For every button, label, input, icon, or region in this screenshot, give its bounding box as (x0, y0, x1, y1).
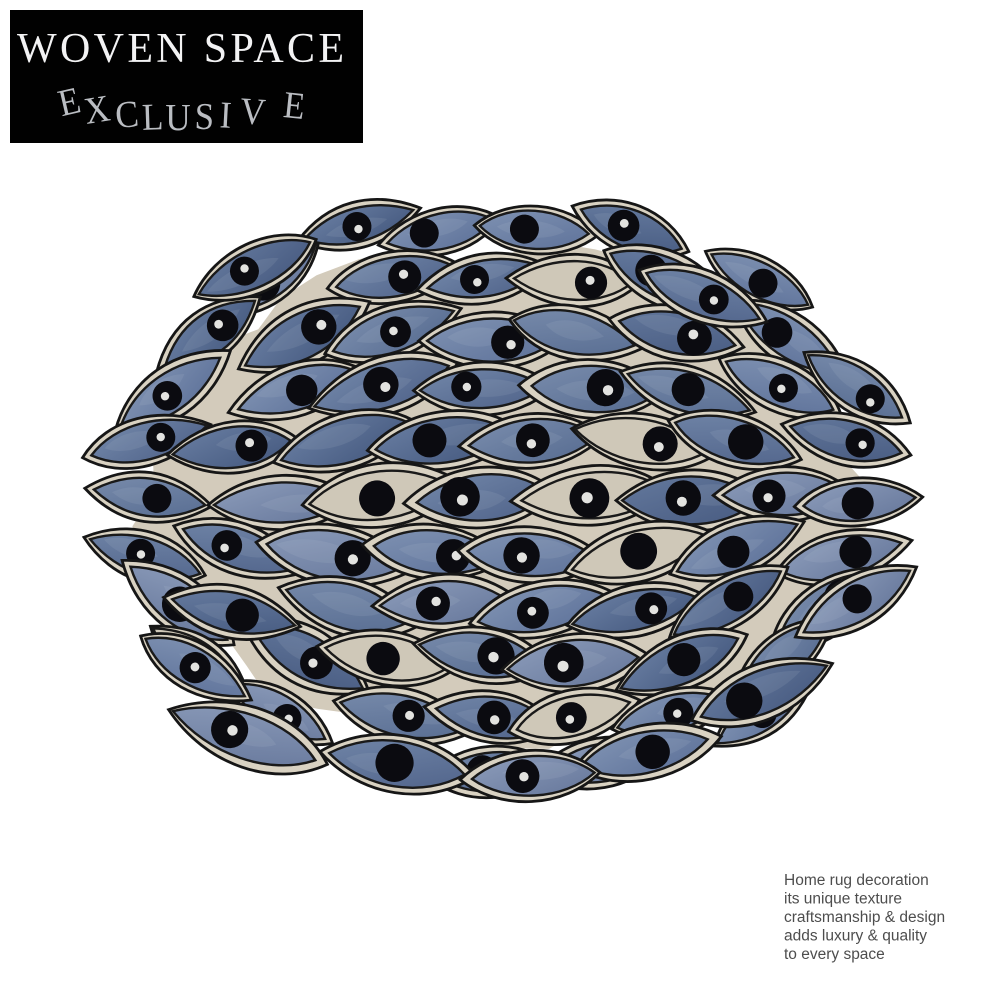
svg-text:Home rug decoration: Home rug decoration (784, 872, 929, 889)
svg-text:S: S (194, 94, 215, 137)
svg-text:L: L (141, 95, 164, 138)
svg-text:U: U (165, 96, 190, 139)
svg-text:C: C (113, 92, 140, 137)
svg-text:I: I (219, 93, 233, 136)
svg-text:E: E (282, 83, 308, 128)
svg-text:to every space: to every space (784, 946, 885, 963)
svg-text:V: V (239, 89, 267, 133)
svg-text:its unique texture: its unique texture (784, 891, 902, 908)
svg-text:WOVEN SPACE: WOVEN SPACE (17, 26, 349, 72)
svg-text:craftsmanship & design: craftsmanship & design (784, 909, 945, 926)
svg-text:adds luxury & quality: adds luxury & quality (784, 928, 927, 945)
